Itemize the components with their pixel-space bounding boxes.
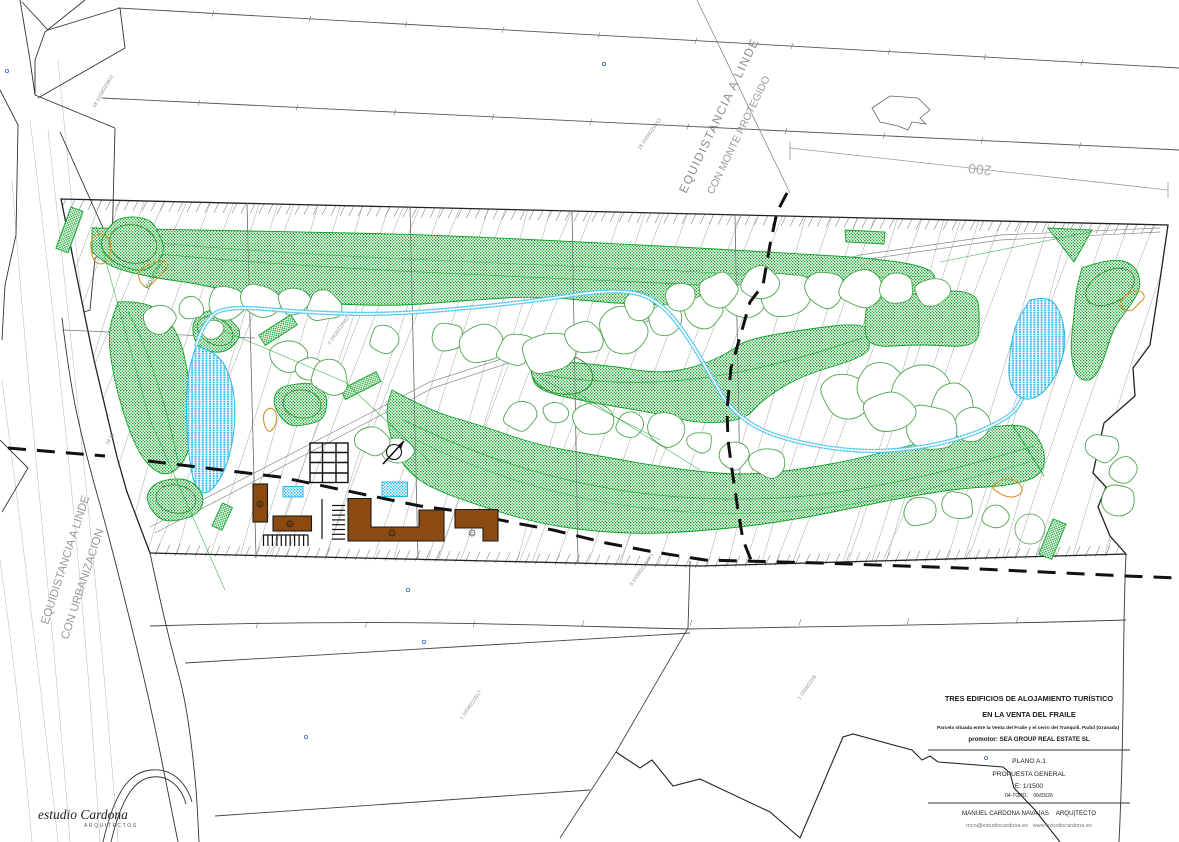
svg-text:200: 200	[967, 161, 992, 179]
svg-text:PROPUESTA GENERAL: PROPUESTA GENERAL	[992, 771, 1065, 778]
svg-text:PLANO A.1: PLANO A.1	[1012, 758, 1046, 765]
svg-text:B: B	[288, 522, 291, 527]
svg-text:E: 1/1500: E: 1/1500	[1015, 783, 1044, 790]
svg-text:TRES EDIFICIOS DE ALOJAMIENTO: TRES EDIFICIOS DE ALOJAMIENTO TURÍSTICO	[945, 694, 1114, 703]
svg-text:ARQUITECTOS: ARQUITECTOS	[84, 823, 138, 829]
svg-text:Parcela situada entre la Venta: Parcela situada entre la Venta del Frail…	[937, 725, 1119, 731]
svg-text:mcn@estudiocardona.es www.es: mcn@estudiocardona.es www.estudiocardona…	[966, 823, 1092, 829]
svg-text:MANUEL CARDONA NAVAJAS ARQU: MANUEL CARDONA NAVAJAS ARQU|TECTO	[962, 810, 1096, 817]
svg-text:A: A	[390, 531, 393, 536]
svg-text:promotor: SEA GROUP REAL ESTAT: promotor: SEA GROUP REAL ESTATE SL	[968, 736, 1090, 743]
svg-text:B: B	[258, 502, 261, 507]
svg-text:estudio Cardona: estudio Cardona	[38, 807, 128, 822]
svg-text:04-TOPO. 06/03/26: 04-TOPO. 06/03/26	[1005, 793, 1053, 799]
svg-text:EN LA VENTA DEL FRAILE: EN LA VENTA DEL FRAILE	[982, 710, 1076, 719]
